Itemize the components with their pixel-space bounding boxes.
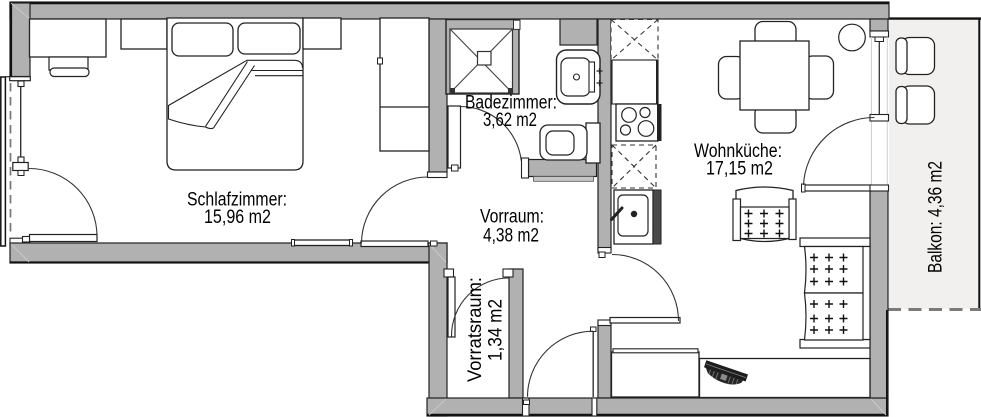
svg-text:Balkon: 4,36 m2: Balkon: 4,36 m2 — [926, 161, 947, 273]
svg-text:Vorratsraum:: Vorratsraum: — [465, 277, 486, 382]
svg-text:3,62 m2: 3,62 m2 — [483, 110, 537, 131]
svg-text:15,96 m2: 15,96 m2 — [204, 207, 271, 228]
svg-text:1,34 m2: 1,34 m2 — [486, 299, 507, 361]
svg-text:Vorraum:: Vorraum: — [480, 206, 544, 227]
svg-text:17,15 m2: 17,15 m2 — [706, 159, 773, 180]
svg-text:4,38 m2: 4,38 m2 — [483, 225, 539, 246]
